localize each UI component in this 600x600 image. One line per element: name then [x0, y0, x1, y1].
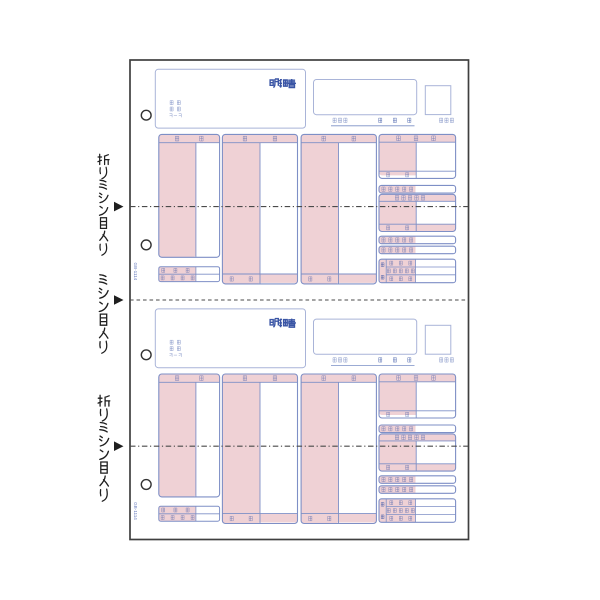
svg-text:GB-1114: GB-1114 — [133, 263, 138, 281]
svg-text:GB-1114: GB-1114 — [133, 502, 138, 520]
